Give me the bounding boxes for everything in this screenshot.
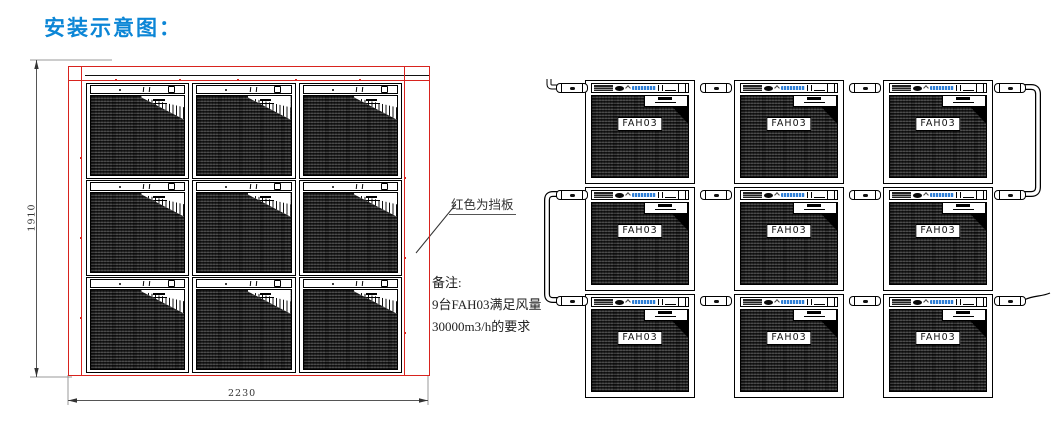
fastener-dot <box>359 79 361 81</box>
switch-icon <box>168 280 175 287</box>
baffle-line-top <box>69 80 429 81</box>
power-button-icon <box>764 86 773 91</box>
gauge-marks-icon <box>658 299 663 305</box>
switch-icon <box>827 83 835 93</box>
corner-louver <box>248 290 291 314</box>
handle-icon <box>658 204 671 207</box>
label-sticker-icon <box>594 85 613 91</box>
switch-icon <box>381 280 388 287</box>
corner-panel <box>793 310 837 321</box>
brand-mark <box>930 300 954 304</box>
unit-top-bar <box>303 182 398 191</box>
filter-mesh: FAH03 <box>889 309 987 392</box>
power-button-icon <box>913 86 922 91</box>
unit-label: FAH03 <box>766 117 811 131</box>
installation-diagram: 安装示意图： <box>0 0 1055 441</box>
indicator-dot-icon <box>119 283 121 285</box>
corner-louver <box>141 193 184 217</box>
switch-icon <box>976 190 984 200</box>
filter-unit-side: FAH03 <box>585 187 695 291</box>
divider <box>963 193 974 198</box>
gauge-marks-icon <box>807 299 812 305</box>
indicator-dot-icon <box>332 89 334 91</box>
unit-label: FAH03 <box>915 117 960 131</box>
power-button-icon <box>913 300 922 305</box>
indicator-dot-icon <box>119 186 121 188</box>
corner-louver <box>248 193 291 217</box>
corner-panel <box>644 203 688 214</box>
handle-icon <box>260 99 271 101</box>
unit-control-bar <box>591 190 689 200</box>
filter-mesh <box>90 289 185 370</box>
gauge-marks-icon <box>956 85 961 91</box>
divider <box>814 193 825 198</box>
switch-icon <box>381 183 388 190</box>
height-dimension: 1910 <box>27 203 38 231</box>
handle-icon <box>956 204 969 207</box>
filter-unit-front <box>299 277 402 373</box>
vent-marks-icon <box>143 184 151 189</box>
filter-mesh: FAH03 <box>740 95 838 178</box>
indicator-dot-icon <box>225 89 227 91</box>
switch-icon <box>678 297 686 307</box>
front-view-assembly <box>68 66 430 376</box>
unit-top-bar <box>303 85 398 94</box>
corner-panel <box>942 96 986 107</box>
switch-icon <box>827 190 835 200</box>
unit-top-bar <box>90 182 185 191</box>
unit-label: FAH03 <box>617 224 662 238</box>
power-button-icon <box>913 193 922 198</box>
handle-icon <box>658 311 671 314</box>
arrowhead-icon <box>34 60 38 69</box>
fastener-dot <box>179 79 181 81</box>
switch-icon <box>976 83 984 93</box>
unit-control-bar <box>591 297 689 307</box>
gauge-marks-icon <box>658 192 663 198</box>
divider <box>963 86 974 91</box>
switch-icon <box>678 190 686 200</box>
width-dimension: 2230 <box>228 388 256 399</box>
notes-block: 备注: 9台FAH03满足风量 30000m3/h的要求 <box>432 272 542 338</box>
fastener-dot <box>115 79 117 81</box>
handle-icon <box>956 311 969 314</box>
arrowhead-icon <box>68 398 77 402</box>
corner-panel <box>793 96 837 107</box>
hose-connector <box>849 296 881 306</box>
filter-mesh <box>303 95 398 176</box>
hose-connector <box>849 190 881 200</box>
vent-marks-icon <box>356 184 364 189</box>
fastener-dot <box>80 237 82 239</box>
label-sticker-icon <box>892 85 911 91</box>
filter-unit-front <box>299 180 402 276</box>
baffle-line-right <box>404 67 405 375</box>
gauge-marks-icon <box>956 192 961 198</box>
handle-icon <box>807 311 820 314</box>
unit-control-bar <box>889 190 987 200</box>
filter-unit-side: FAH03 <box>585 80 695 184</box>
fastener-dot <box>237 79 239 81</box>
unit-label: FAH03 <box>766 331 811 345</box>
unit-top-bar <box>303 279 398 288</box>
unit-control-bar <box>740 190 838 200</box>
notes-heading: 备注: <box>432 272 542 294</box>
brand-mark <box>930 193 954 197</box>
vent-marks-icon <box>143 281 151 286</box>
caret-icon <box>625 192 631 198</box>
filter-unit-side: FAH03 <box>734 80 844 184</box>
caret-icon <box>774 299 780 305</box>
handle-icon <box>153 99 164 101</box>
caret-icon <box>625 299 631 305</box>
filter-unit-side: FAH03 <box>734 187 844 291</box>
label-sticker-icon <box>743 192 762 198</box>
brand-mark <box>632 193 656 197</box>
hose-loop-left <box>547 194 570 300</box>
caret-icon <box>774 85 780 91</box>
hose-loop-right <box>1010 87 1038 194</box>
vent-marks-icon <box>249 281 257 286</box>
divider <box>814 300 825 305</box>
filter-unit-side: FAH03 <box>883 187 993 291</box>
switch-icon <box>274 183 281 190</box>
corner-panel <box>942 310 986 321</box>
indicator-dot-icon <box>119 89 121 91</box>
unit-top-bar <box>196 182 291 191</box>
hose-connector <box>556 83 588 93</box>
gauge-marks-icon <box>807 85 812 91</box>
switch-icon <box>168 86 175 93</box>
vent-marks-icon <box>356 87 364 92</box>
corner-louver <box>354 290 397 314</box>
brand-mark <box>930 86 954 90</box>
brand-mark <box>632 300 656 304</box>
corner-louver <box>354 96 397 120</box>
corner-louver <box>141 96 184 120</box>
filter-mesh: FAH03 <box>740 309 838 392</box>
page-title: 安装示意图： <box>44 12 182 42</box>
fastener-dot <box>404 177 406 179</box>
divider <box>814 86 825 91</box>
power-button-icon <box>764 300 773 305</box>
filter-mesh <box>90 192 185 273</box>
unit-label: FAH03 <box>915 224 960 238</box>
filter-unit-front <box>192 83 295 179</box>
label-sticker-icon <box>594 299 613 305</box>
filter-unit-front <box>86 277 189 373</box>
filter-mesh <box>303 192 398 273</box>
corner-panel <box>644 96 688 107</box>
handle-icon <box>956 97 969 100</box>
unit-control-bar <box>740 83 838 93</box>
switch-icon <box>976 297 984 307</box>
unit-top-bar <box>196 279 291 288</box>
power-button-icon <box>615 300 624 305</box>
hose-connector <box>700 296 732 306</box>
vent-marks-icon <box>249 87 257 92</box>
filter-mesh: FAH03 <box>591 202 689 285</box>
top-flange-line <box>85 75 429 76</box>
unit-label: FAH03 <box>617 331 662 345</box>
unit-top-bar <box>196 85 291 94</box>
unit-control-bar <box>889 83 987 93</box>
switch-icon <box>168 183 175 190</box>
handle-icon <box>153 196 164 198</box>
hose-connector <box>700 83 732 93</box>
switch-icon <box>827 297 835 307</box>
gauge-marks-icon <box>956 299 961 305</box>
caret-icon <box>923 85 929 91</box>
label-sticker-icon <box>743 85 762 91</box>
divider <box>665 193 676 198</box>
fastener-dot <box>80 317 82 319</box>
baffle-annotation: 红色为挡板 <box>449 194 516 215</box>
brand-mark <box>781 193 805 197</box>
filter-mesh: FAH03 <box>889 202 987 285</box>
unit-top-bar <box>90 85 185 94</box>
power-button-icon <box>615 193 624 198</box>
label-sticker-icon <box>892 299 911 305</box>
indicator-dot-icon <box>225 186 227 188</box>
handle-icon <box>658 97 671 100</box>
corner-louver <box>141 290 184 314</box>
hose-connector <box>556 190 588 200</box>
hose-connector <box>994 296 1026 306</box>
filter-unit-side: FAH03 <box>585 294 695 398</box>
arrowhead-icon <box>34 368 38 377</box>
filter-unit-front <box>192 180 295 276</box>
notes-line: 30000m3/h的要求 <box>432 316 542 338</box>
switch-icon <box>274 280 281 287</box>
vent-marks-icon <box>249 184 257 189</box>
hose-connector <box>700 190 732 200</box>
unit-control-bar <box>740 297 838 307</box>
corner-louver <box>354 193 397 217</box>
unit-control-bar <box>591 83 689 93</box>
handle-icon <box>260 293 271 295</box>
filter-unit-front <box>299 83 402 179</box>
filter-mesh: FAH03 <box>591 95 689 178</box>
indicator-dot-icon <box>332 283 334 285</box>
fastener-dot <box>404 332 406 334</box>
power-button-icon <box>764 193 773 198</box>
side-view-assembly: FAH03 FAH03 FAH03 FAH03 FAH03 FAH03 FAH0… <box>585 80 993 398</box>
indicator-dot-icon <box>225 283 227 285</box>
switch-icon <box>678 83 686 93</box>
gauge-marks-icon <box>807 192 812 198</box>
handle-icon <box>807 97 820 100</box>
filter-unit-side: FAH03 <box>734 294 844 398</box>
filter-mesh <box>303 289 398 370</box>
front-unit-grid <box>86 83 402 373</box>
brand-mark <box>632 86 656 90</box>
filter-mesh: FAH03 <box>889 95 987 178</box>
arrowhead-icon <box>419 398 428 402</box>
caret-icon <box>923 299 929 305</box>
filter-mesh <box>196 289 291 370</box>
filter-unit-side: FAH03 <box>883 80 993 184</box>
divider <box>963 300 974 305</box>
fastener-dot <box>80 157 82 159</box>
unit-label: FAH03 <box>915 331 960 345</box>
hose-connector <box>556 296 588 306</box>
indicator-dot-icon <box>332 186 334 188</box>
corner-panel <box>942 203 986 214</box>
handle-icon <box>366 196 377 198</box>
caret-icon <box>774 192 780 198</box>
caret-icon <box>923 192 929 198</box>
filter-mesh <box>90 95 185 176</box>
label-sticker-icon <box>892 192 911 198</box>
hose-tail-bottom-right <box>1024 293 1050 300</box>
handle-icon <box>153 293 164 295</box>
unit-label: FAH03 <box>766 224 811 238</box>
hose-connector <box>994 190 1026 200</box>
filter-unit-front <box>86 83 189 179</box>
divider <box>665 300 676 305</box>
filter-mesh <box>196 95 291 176</box>
vent-marks-icon <box>143 87 151 92</box>
corner-panel <box>793 203 837 214</box>
caret-icon <box>625 85 631 91</box>
filter-mesh: FAH03 <box>591 309 689 392</box>
baffle-line-left <box>81 67 82 375</box>
fastener-dot <box>295 79 297 81</box>
hose-connector <box>994 83 1026 93</box>
handle-icon <box>366 293 377 295</box>
filter-unit-front <box>192 277 295 373</box>
unit-control-bar <box>889 297 987 307</box>
corner-louver <box>248 96 291 120</box>
vent-marks-icon <box>356 281 364 286</box>
switch-icon <box>381 86 388 93</box>
gauge-marks-icon <box>658 85 663 91</box>
brand-mark <box>781 86 805 90</box>
handle-icon <box>366 99 377 101</box>
filter-mesh <box>196 192 291 273</box>
unit-label: FAH03 <box>617 117 662 131</box>
switch-icon <box>274 86 281 93</box>
power-button-icon <box>615 86 624 91</box>
notes-line: 9台FAH03满足风量 <box>432 294 542 316</box>
handle-icon <box>260 196 271 198</box>
filter-mesh: FAH03 <box>740 202 838 285</box>
divider <box>665 86 676 91</box>
filter-unit-side: FAH03 <box>883 294 993 398</box>
filter-unit-front <box>86 180 189 276</box>
corner-panel <box>644 310 688 321</box>
unit-top-bar <box>90 279 185 288</box>
brand-mark <box>781 300 805 304</box>
fastener-dot <box>404 257 406 259</box>
label-sticker-icon <box>743 299 762 305</box>
hose-connector <box>849 83 881 93</box>
label-sticker-icon <box>594 192 613 198</box>
handle-icon <box>807 204 820 207</box>
